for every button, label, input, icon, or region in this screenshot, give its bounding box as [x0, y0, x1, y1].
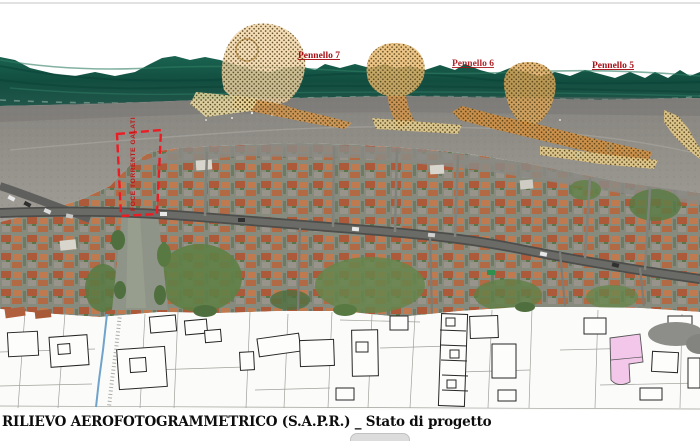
label-pennello-7: Pennello 7 — [298, 51, 340, 61]
label-pennello-5: Pennello 5 — [592, 61, 634, 71]
aerial-survey-map: FOCE TORRENTE GALATI Pennello 7 Pennello… — [0, 0, 700, 412]
scrollbar-thumb-fragment[interactable] — [350, 433, 410, 441]
cadastral-map — [0, 302, 700, 412]
survey-figure: FOCE TORRENTE GALATI Pennello 7 Pennello… — [0, 0, 700, 441]
river-mouth-label: FOCE TORRENTE GALATI — [130, 117, 137, 211]
label-pennello-6: Pennello 6 — [452, 59, 494, 69]
caption-text: RILIEVO AEROFOTOGRAMMETRICO (S.A.P.R.) _… — [2, 414, 491, 430]
